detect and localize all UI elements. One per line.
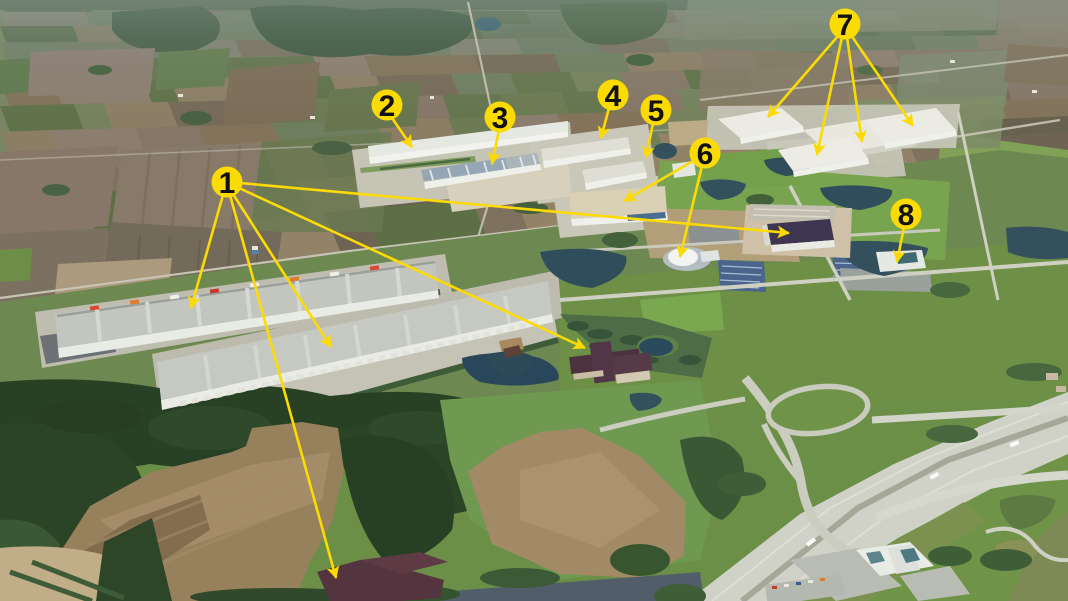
svg-text:8: 8: [898, 199, 915, 232]
svg-text:1: 1: [219, 167, 236, 200]
svg-text:4: 4: [605, 80, 622, 113]
svg-text:6: 6: [697, 138, 714, 171]
svg-text:3: 3: [492, 102, 509, 135]
svg-text:7: 7: [837, 9, 854, 42]
svg-text:5: 5: [648, 95, 665, 128]
svg-text:2: 2: [379, 90, 396, 123]
